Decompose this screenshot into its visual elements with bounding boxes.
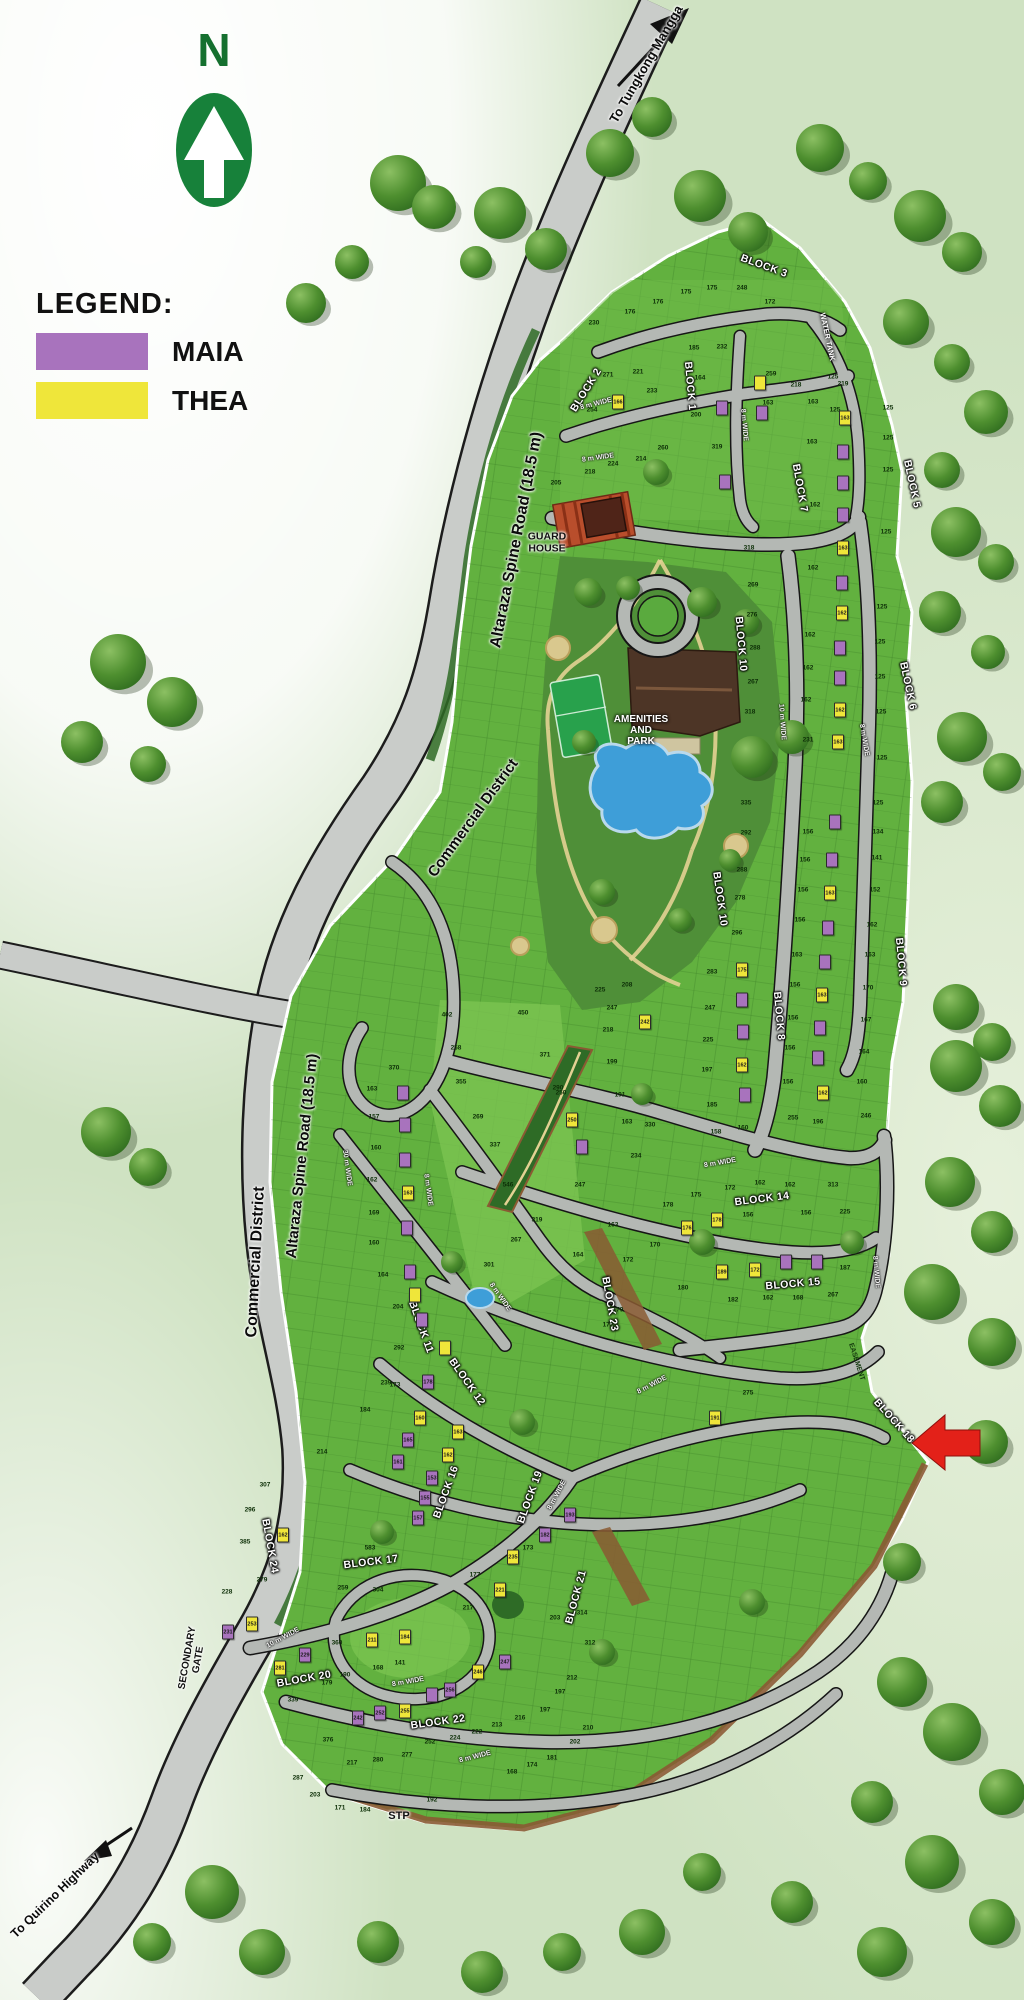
tree-icon xyxy=(905,1835,959,1889)
tree-icon xyxy=(979,1769,1024,1815)
tree-icon xyxy=(883,299,929,345)
tree-icon xyxy=(572,730,596,754)
tree-icon xyxy=(971,635,1005,669)
tree-icon xyxy=(923,1703,981,1761)
north-arrow-icon xyxy=(176,93,252,207)
tree-icon xyxy=(616,576,640,600)
tree-icon xyxy=(286,283,326,323)
tree-icon xyxy=(919,591,961,633)
tree-icon xyxy=(689,1229,715,1255)
tree-icon xyxy=(934,344,970,380)
site-development-map: To Tungkong ManggaAltaraza Spine Road (1… xyxy=(0,0,1024,2000)
tree-icon xyxy=(239,1929,285,1975)
playground-node xyxy=(546,636,570,660)
tree-icon xyxy=(543,1933,581,1971)
north-letter: N xyxy=(176,30,252,71)
tree-icon xyxy=(574,578,602,606)
tree-icon xyxy=(441,1251,463,1273)
tree-icon xyxy=(921,781,963,823)
tree-icon xyxy=(631,1083,653,1105)
tree-icon xyxy=(851,1781,893,1823)
tree-icon xyxy=(129,1148,167,1186)
tree-icon xyxy=(771,1881,813,1923)
tree-icon xyxy=(849,162,887,200)
tree-icon xyxy=(883,1543,921,1581)
tree-icon xyxy=(461,1951,503,1993)
park-node xyxy=(591,917,617,943)
tree-icon xyxy=(632,97,672,137)
tree-icon xyxy=(930,1040,982,1092)
tree-icon xyxy=(509,1409,535,1435)
tree-icon xyxy=(964,390,1008,434)
tree-icon xyxy=(978,544,1014,580)
tree-icon xyxy=(674,170,726,222)
tree-icon xyxy=(904,1264,960,1320)
guard-house-building xyxy=(581,497,626,537)
tree-icon xyxy=(81,1107,131,1157)
tree-icon xyxy=(683,1853,721,1891)
tree-icon xyxy=(668,908,692,932)
tree-icon xyxy=(925,1157,975,1207)
tree-icon xyxy=(979,1085,1021,1127)
tree-icon xyxy=(185,1865,239,1919)
tree-icon xyxy=(133,1923,171,1961)
tree-icon xyxy=(370,1520,394,1544)
legend-row-maia: MAIA xyxy=(36,333,248,370)
tree-icon xyxy=(474,187,526,239)
tree-icon xyxy=(942,232,982,272)
tree-icon xyxy=(412,185,456,229)
small-pond xyxy=(466,1288,494,1308)
tree-icon xyxy=(130,746,166,782)
tree-icon xyxy=(525,228,567,270)
tree-icon xyxy=(586,129,634,177)
tree-icon xyxy=(335,245,369,279)
tree-icon xyxy=(719,849,741,871)
tree-icon xyxy=(460,246,492,278)
tree-icon xyxy=(147,677,197,727)
tree-icon xyxy=(739,1589,765,1615)
legend-label-maia: MAIA xyxy=(172,336,244,368)
legend: LEGEND: MAIA THEA xyxy=(36,288,248,419)
legend-row-thea: THEA xyxy=(36,382,248,419)
tree-icon xyxy=(924,452,960,488)
tree-icon xyxy=(796,124,844,172)
tree-icon xyxy=(589,1639,615,1665)
tree-icon xyxy=(894,190,946,242)
tree-icon xyxy=(969,1899,1015,1945)
swimming-pool xyxy=(590,742,712,838)
tree-icon xyxy=(731,736,773,778)
tree-icon xyxy=(968,1318,1016,1366)
thea-color-swatch xyxy=(36,382,148,419)
park-node xyxy=(511,937,529,955)
tree-icon xyxy=(643,459,669,485)
north-compass: N xyxy=(176,30,252,71)
clubhouse xyxy=(628,648,740,736)
tree-icon xyxy=(840,1230,864,1254)
maia-color-swatch xyxy=(36,333,148,370)
tree-icon xyxy=(733,609,759,635)
tree-icon xyxy=(687,587,717,617)
tree-icon xyxy=(857,1927,907,1977)
tree-icon xyxy=(775,720,809,754)
tree-icon xyxy=(877,1657,927,1707)
legend-label-thea: THEA xyxy=(172,385,248,417)
tree-icon xyxy=(357,1921,399,1963)
tree-icon xyxy=(933,984,979,1030)
tree-icon xyxy=(589,879,615,905)
legend-title: LEGEND: xyxy=(36,288,248,321)
tree-icon xyxy=(971,1211,1013,1253)
tree-icon xyxy=(728,212,768,252)
tree-icon xyxy=(937,712,987,762)
tree-icon xyxy=(90,634,146,690)
tree-icon xyxy=(931,507,981,557)
tree-icon xyxy=(619,1909,665,1955)
tree-icon xyxy=(61,721,103,763)
tree-icon xyxy=(983,753,1021,791)
